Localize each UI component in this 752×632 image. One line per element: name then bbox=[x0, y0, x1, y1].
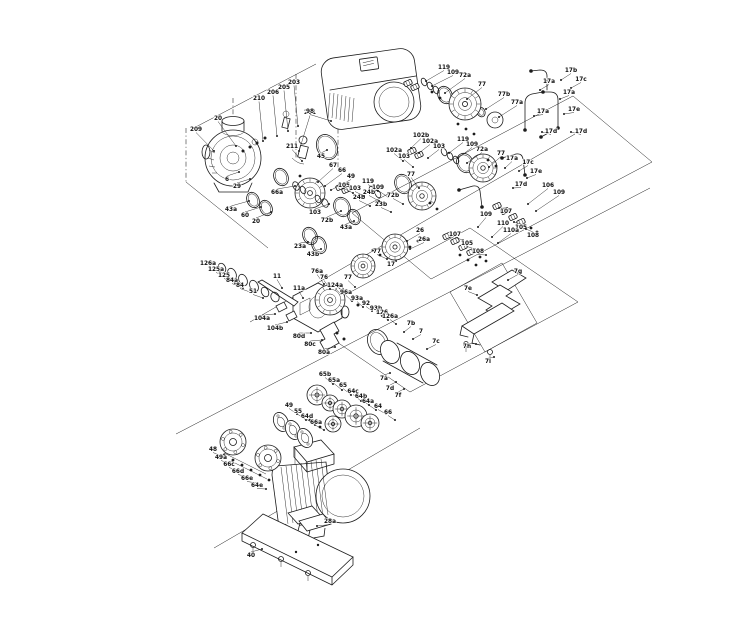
part-number-label: 66e bbox=[241, 476, 253, 482]
part-number-label: 48 bbox=[209, 447, 217, 453]
part-number-label: 7d bbox=[386, 386, 394, 392]
part-number-label: 66a bbox=[271, 190, 283, 196]
part-number-label: 60 bbox=[241, 213, 249, 219]
part-number-label: 17d bbox=[575, 129, 587, 135]
part-number-label: 109 bbox=[553, 190, 565, 196]
part-number-label: 209 bbox=[190, 127, 202, 133]
part-number-label: 40 bbox=[247, 553, 255, 559]
part-number-label: 28a bbox=[324, 519, 336, 525]
part-number-label: 110a bbox=[503, 228, 519, 234]
part-number-label: 23a bbox=[294, 244, 306, 250]
part-number-label: 104a bbox=[254, 316, 270, 322]
part-number-label: 124a bbox=[327, 283, 343, 289]
part-number-label: 7f bbox=[395, 393, 402, 399]
part-number-label: 17a bbox=[563, 90, 575, 96]
part-number-label: 77a bbox=[511, 100, 523, 106]
part-number-label: 67 bbox=[329, 163, 337, 169]
part-number-label: 126a bbox=[382, 314, 398, 320]
part-number-label: 108 bbox=[472, 249, 484, 255]
part-number-label: 17 bbox=[387, 262, 395, 268]
part-number-label: 29 bbox=[233, 184, 241, 190]
exploded-parts-diagram: 2092021020620520320121162943a60204567664… bbox=[0, 0, 752, 632]
part-number-label: 77 bbox=[497, 151, 505, 157]
part-number-label: 110 bbox=[497, 221, 509, 227]
part-number-label: 72b bbox=[321, 218, 333, 224]
part-number-label: 108 bbox=[527, 233, 539, 239]
part-number-label: 17a bbox=[543, 79, 555, 85]
part-number-label: 66a bbox=[310, 420, 322, 426]
part-number-label: 98 bbox=[306, 109, 314, 115]
part-number-label: 107 bbox=[449, 232, 461, 238]
part-number-label: 17e bbox=[568, 107, 580, 113]
part-number-label: 24b bbox=[363, 190, 375, 196]
part-number-label: 66 bbox=[338, 168, 346, 174]
outer-sleeves bbox=[363, 326, 443, 389]
part-number-label: 92 bbox=[362, 301, 370, 307]
part-number-label: 11 bbox=[273, 274, 281, 280]
part-number-label: 77 bbox=[478, 82, 486, 88]
part-number-label: 43b bbox=[307, 252, 319, 258]
part-number-label: 11a bbox=[293, 286, 305, 292]
part-number-label: 72b bbox=[387, 193, 399, 199]
part-number-label: 84 bbox=[236, 283, 244, 289]
part-number-label: 49 bbox=[347, 174, 355, 180]
part-number-label: 43a bbox=[340, 225, 352, 231]
part-number-label: 17c bbox=[575, 77, 587, 83]
part-number-label: 109 bbox=[447, 70, 459, 76]
part-number-label: 66 bbox=[384, 410, 392, 416]
part-number-label: 106 bbox=[542, 183, 554, 189]
part-number-label: 17a bbox=[537, 109, 549, 115]
part-number-label: 66d bbox=[232, 469, 244, 475]
part-number-label: 20 bbox=[252, 219, 260, 225]
part-number-label: 103 bbox=[309, 210, 321, 216]
part-number-label: 77 bbox=[373, 249, 381, 255]
part-number-label: 77 bbox=[344, 275, 352, 281]
wedge-plate bbox=[276, 302, 287, 312]
part-number-label: 211 bbox=[286, 144, 298, 150]
part-number-label: 51 bbox=[249, 289, 257, 295]
part-number-label: 17a bbox=[506, 156, 518, 162]
part-number-label: 17d bbox=[545, 129, 557, 135]
part-number-label: 7 bbox=[419, 329, 423, 335]
part-number-label: 77b bbox=[498, 92, 510, 98]
diagram-page: 2092021020620520320121162943a60204567664… bbox=[0, 0, 752, 632]
part-number-label: 7i bbox=[485, 359, 491, 365]
part-number-label: 76 bbox=[320, 275, 328, 281]
part-number-label: 7e bbox=[464, 286, 472, 292]
motor-control-unit bbox=[319, 47, 422, 131]
part-number-label: 105 bbox=[461, 241, 473, 247]
part-number-label: 17d bbox=[515, 182, 527, 188]
part-number-label: 7h bbox=[463, 344, 471, 350]
pump-shaft bbox=[258, 280, 298, 306]
part-number-label: 17e bbox=[530, 169, 542, 175]
part-number-label: 103 bbox=[349, 186, 361, 192]
part-number-label: 26a bbox=[418, 237, 430, 243]
part-number-label: 26 bbox=[416, 228, 424, 234]
part-number-label: 43a bbox=[225, 207, 237, 213]
part-number-label: 6 bbox=[225, 177, 229, 183]
part-number-label: 7a bbox=[380, 376, 388, 382]
part-number-label: 49a bbox=[215, 455, 227, 461]
part-number-label: 80c bbox=[304, 342, 316, 348]
part-number-label: 17b bbox=[565, 68, 577, 74]
part-number-label: 103 bbox=[433, 144, 445, 150]
part-number-label: 80d bbox=[293, 334, 305, 340]
part-number-label: 64e bbox=[251, 483, 263, 489]
part-number-label: 103 bbox=[398, 154, 410, 160]
part-number-label: 17c bbox=[522, 160, 534, 166]
part-number-label: 109 bbox=[480, 212, 492, 218]
part-number-label: 107 bbox=[500, 209, 512, 215]
part-number-label: 7c bbox=[432, 339, 440, 345]
part-number-label: 65 bbox=[339, 383, 347, 389]
part-number-label: 104b bbox=[267, 326, 283, 332]
part-number-label: 20 bbox=[214, 116, 222, 122]
part-number-label: 64 bbox=[374, 404, 382, 410]
part-number-label: 49 bbox=[285, 403, 293, 409]
part-number-label: 7b bbox=[407, 321, 415, 327]
part-number-label: 66c bbox=[223, 462, 235, 468]
part-number-label: 77 bbox=[407, 172, 415, 178]
part-number-label: 72a bbox=[459, 73, 471, 79]
pump-head-casing bbox=[202, 117, 261, 193]
part-number-label: 80a bbox=[318, 350, 330, 356]
part-number-label: 64a bbox=[362, 399, 374, 405]
part-number-label: 45 bbox=[317, 154, 325, 160]
part-number-label: 72a bbox=[476, 147, 488, 153]
part-number-label: 23b bbox=[375, 202, 387, 208]
part-number-label: 210 bbox=[253, 96, 265, 102]
repeated-parts bbox=[217, 77, 539, 471]
part-number-label: 7g bbox=[514, 269, 522, 275]
part-number-label: 203 bbox=[288, 80, 300, 86]
